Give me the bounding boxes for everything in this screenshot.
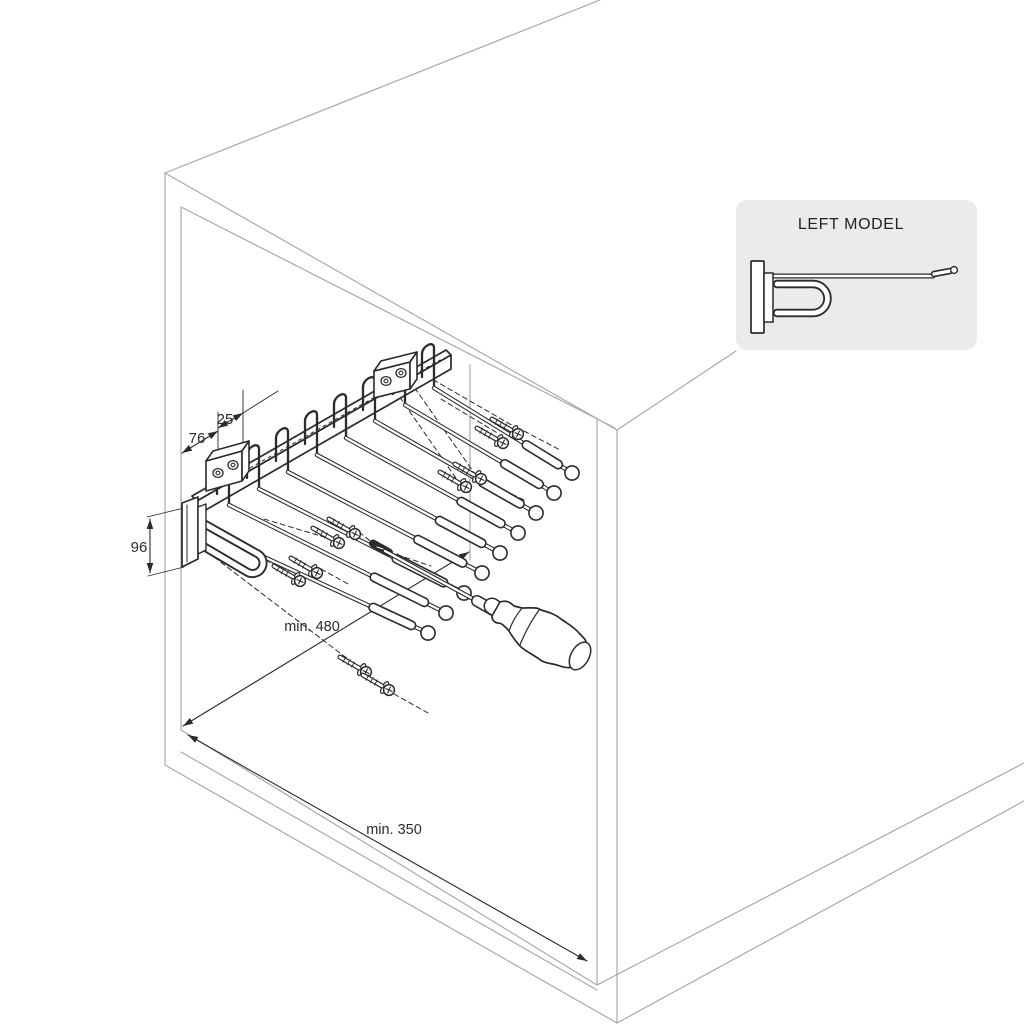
dimension-labels: 76 25 96 min. 480 min. 350 bbox=[131, 411, 422, 838]
cabinet-outline bbox=[165, 0, 1024, 1023]
trouser-rack-installation-diagram: 76 25 96 min. 480 min. 350 LEFT MODEL bbox=[0, 0, 1024, 1024]
dimension-label-min-350: min. 350 bbox=[366, 822, 422, 838]
inset-title: LEFT MODEL bbox=[798, 216, 904, 233]
dimension-label-76: 76 bbox=[189, 430, 206, 447]
dimension-label-min-480: min. 480 bbox=[284, 619, 340, 635]
left-model-inset-panel: LEFT MODEL bbox=[736, 200, 977, 350]
screwdriver bbox=[385, 551, 595, 673]
dimension-label-25: 25 bbox=[217, 411, 234, 428]
trouser-rack-drawing bbox=[182, 344, 579, 713]
installation-diagram-page: 76 25 96 min. 480 min. 350 LEFT MODEL bbox=[0, 0, 1024, 1024]
dimension-label-96: 96 bbox=[131, 539, 148, 556]
